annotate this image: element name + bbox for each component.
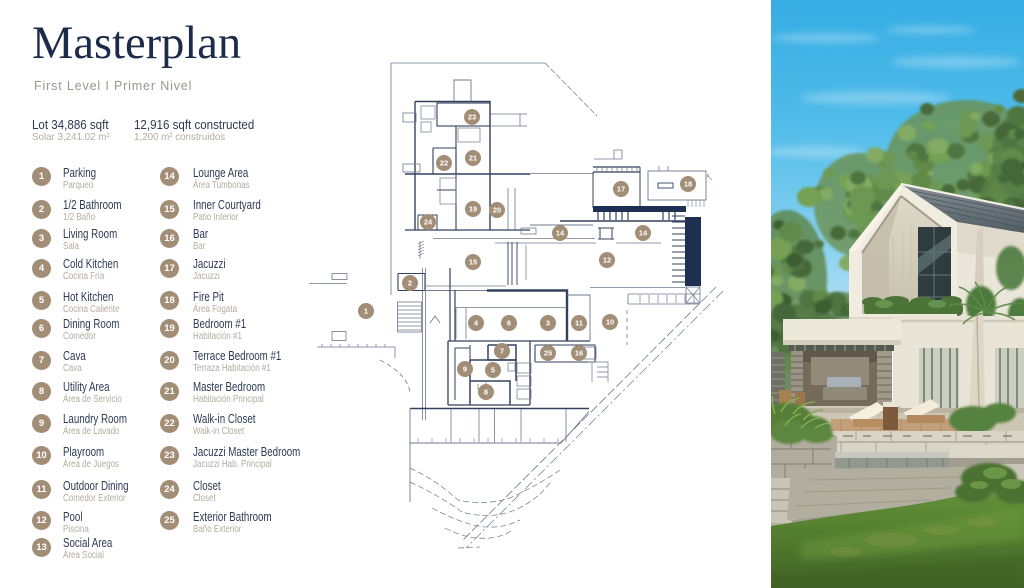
- svg-text:23: 23: [468, 113, 476, 122]
- svg-text:2: 2: [408, 279, 412, 288]
- svg-text:25: 25: [544, 349, 552, 358]
- svg-text:3: 3: [546, 319, 550, 328]
- svg-text:22: 22: [440, 159, 448, 168]
- svg-text:19: 19: [469, 205, 477, 214]
- svg-text:24: 24: [424, 218, 433, 227]
- svg-text:14: 14: [639, 229, 648, 238]
- svg-text:11: 11: [575, 319, 583, 328]
- svg-text:1: 1: [364, 307, 368, 316]
- svg-text:8: 8: [484, 388, 488, 397]
- svg-text:6: 6: [507, 319, 511, 328]
- svg-text:15: 15: [469, 258, 477, 267]
- svg-text:20: 20: [493, 206, 501, 215]
- svg-text:16: 16: [575, 349, 583, 358]
- svg-text:10: 10: [606, 318, 614, 327]
- svg-text:14: 14: [556, 229, 565, 238]
- svg-text:7: 7: [500, 347, 504, 356]
- svg-text:18: 18: [684, 180, 692, 189]
- svg-text:9: 9: [463, 365, 467, 374]
- svg-text:17: 17: [617, 185, 625, 194]
- svg-text:5: 5: [491, 366, 495, 375]
- svg-text:21: 21: [469, 154, 477, 163]
- svg-text:12: 12: [603, 256, 611, 265]
